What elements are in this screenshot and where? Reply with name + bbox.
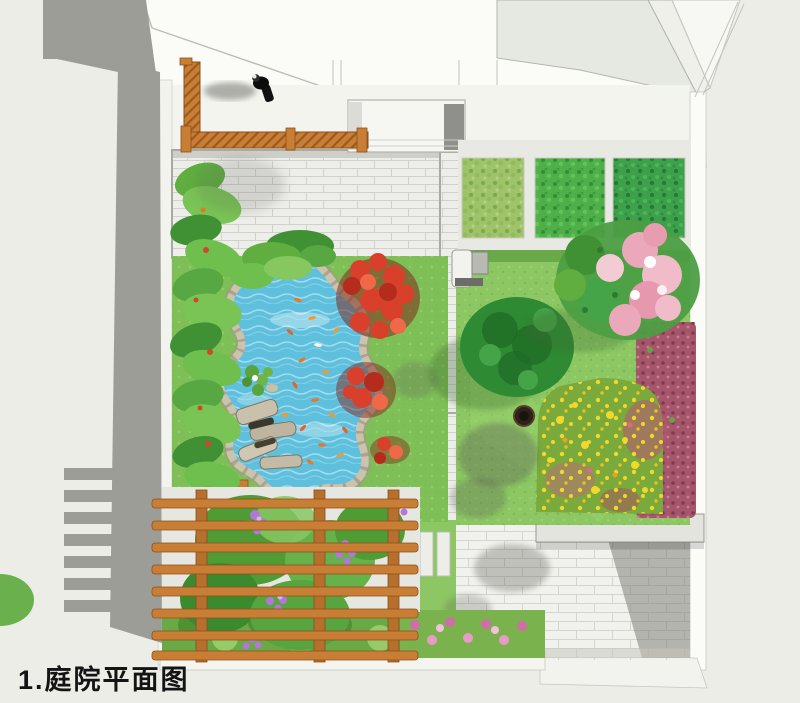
railing-post: [286, 128, 295, 150]
railing-post: [181, 126, 191, 152]
patio-step: [540, 658, 707, 688]
garden-plan-rendering: [0, 0, 800, 703]
veg-plot-2: [535, 158, 605, 238]
exterior-wall-and-shadow: [43, 0, 162, 643]
pergola: [0, 487, 420, 662]
person-shadow: [204, 82, 256, 100]
stepping-stone: [420, 532, 433, 576]
railing-post: [357, 128, 367, 152]
pergola-shadow-teeth: [64, 468, 114, 612]
figure-caption: 1.庭院平面图: [18, 658, 190, 697]
stepping-stone: [437, 532, 450, 576]
wall-band: [110, 62, 162, 643]
garden-bench: [452, 250, 488, 287]
pink-flower-bed: [400, 610, 545, 658]
yellow-flower-bed: [536, 378, 667, 514]
fire-bowl: [514, 406, 534, 426]
veg-plot-1: [462, 158, 524, 238]
